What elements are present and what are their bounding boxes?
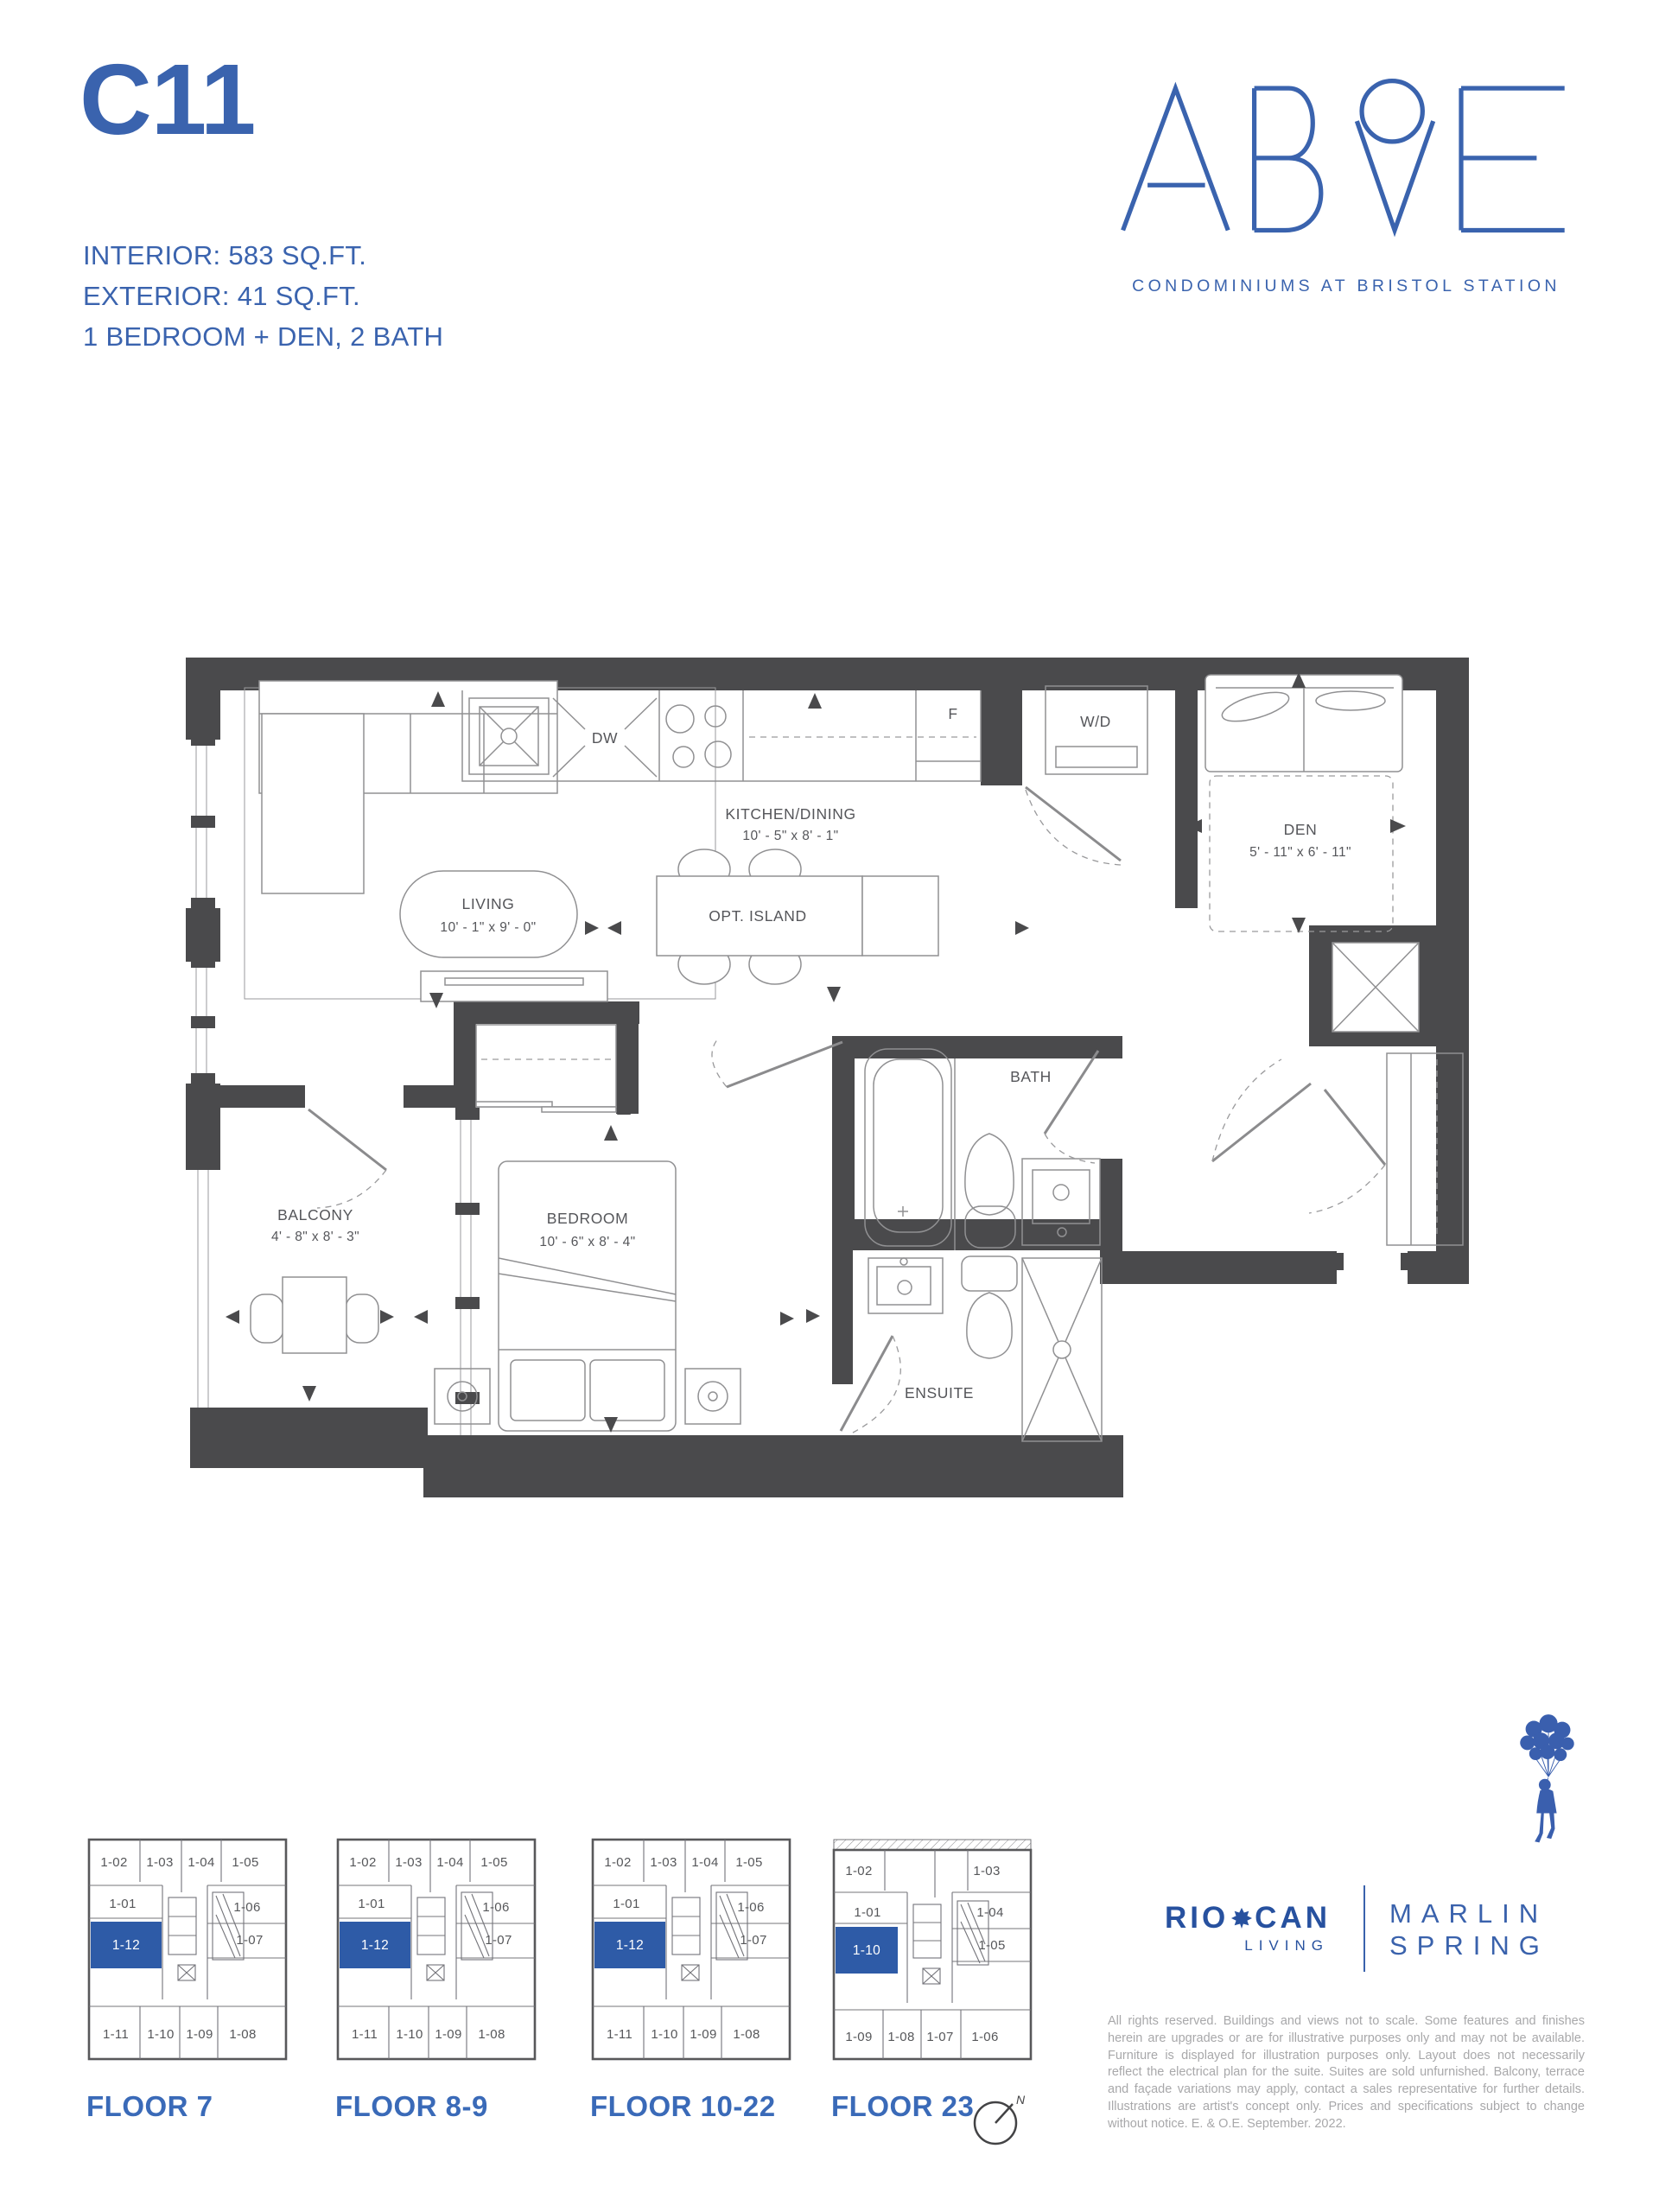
den-dims: 5' - 11" x 6' - 11" [1249, 845, 1351, 860]
svg-text:1-11: 1-11 [352, 2027, 378, 2042]
keyplan-floor-10-22: 1-12 1-02 1-03 1-04 1-05 1-01 1-06 1-07 … [590, 1837, 798, 2123]
svg-text:1-01: 1-01 [854, 1905, 880, 1920]
keyplan-floor-23: 1-10 1-02 1-03 1-01 1-04 1-05 1-09 1-08 … [831, 1837, 1039, 2123]
balloons [1520, 1714, 1573, 1761]
above-logo [1116, 74, 1576, 238]
svg-text:1-03: 1-03 [973, 1864, 1000, 1878]
svg-text:1-08: 1-08 [229, 2027, 256, 2042]
svg-text:1-04: 1-04 [188, 1855, 214, 1870]
marlin-spring-logo: MARLIN SPRING [1389, 1897, 1549, 1961]
svg-text:1-03: 1-03 [650, 1855, 677, 1870]
developer-logos: RIO CAN LIVING MARLIN SPRING [1158, 1882, 1590, 1977]
svg-text:1-09: 1-09 [690, 2027, 716, 2042]
highlight-unit-label: 1-10 [853, 1943, 880, 1958]
logo-divider [1363, 1885, 1365, 1972]
svg-text:1-07: 1-07 [740, 1933, 766, 1948]
spec-block: INTERIOR: 583 SQ.FT. EXTERIOR: 41 SQ.FT.… [83, 235, 443, 357]
svg-text:1-08: 1-08 [478, 2027, 505, 2042]
legal-disclaimer: All rights reserved. Buildings and views… [1108, 2013, 1585, 2133]
above-logo-o-circle [1362, 81, 1422, 142]
svg-text:1-02: 1-02 [604, 1855, 631, 1870]
svg-text:1-01: 1-01 [613, 1897, 639, 1911]
svg-text:1-07: 1-07 [485, 1933, 512, 1948]
foyer-fixtures [1212, 1053, 1463, 1245]
svg-text:1-02: 1-02 [845, 1864, 872, 1878]
kitchen-dims: 10' - 5" x 8' - 1" [742, 829, 838, 843]
svg-text:1-09: 1-09 [435, 2027, 461, 2042]
keyplan-floor-7: 1-12 1-02 1-03 1-04 1-05 1-01 1-06 1-07 … [86, 1837, 294, 2123]
unit-code: C11 [79, 41, 255, 157]
svg-text:1-05: 1-05 [735, 1855, 762, 1870]
spec-interior: INTERIOR: 583 SQ.FT. [83, 235, 443, 276]
spec-exterior: EXTERIOR: 41 SQ.FT. [83, 276, 443, 316]
north-arrow-icon: N [966, 2087, 1035, 2156]
svg-text:1-10: 1-10 [396, 2027, 423, 2042]
svg-text:1-06: 1-06 [971, 2030, 998, 2044]
maple-leaf-icon [1231, 1908, 1252, 1929]
riocan-text-left: RIO [1165, 1901, 1229, 1935]
bedroom-dims: 10' - 6" x 8' - 4" [539, 1235, 635, 1249]
living-label: LIVING [462, 895, 515, 912]
balcony-label: BALCONY [277, 1206, 353, 1224]
svg-text:1-02: 1-02 [349, 1855, 376, 1870]
svg-text:1-05: 1-05 [232, 1855, 258, 1870]
svg-text:1-02: 1-02 [100, 1855, 127, 1870]
keyplan-floor-7-svg: 1-12 1-02 1-03 1-04 1-05 1-01 1-06 1-07 … [86, 1837, 289, 2063]
keyplan-floor-23-svg: 1-10 1-02 1-03 1-01 1-04 1-05 1-09 1-08 … [831, 1837, 1034, 2063]
riocan-logo: RIO CAN LIVING [1165, 1901, 1331, 1955]
svg-text:1-04: 1-04 [436, 1855, 463, 1870]
balloon-girl-logo-icon [1514, 1713, 1581, 1868]
highlight-unit-label: 1-12 [616, 1938, 644, 1953]
fridge-label: F [948, 705, 957, 722]
svg-text:1-03: 1-03 [146, 1855, 173, 1870]
ensuite-label: ENSUITE [905, 1384, 974, 1402]
marlin-line1: MARLIN [1389, 1897, 1549, 1929]
riocan-text-right: CAN [1255, 1901, 1331, 1935]
svg-text:1-10: 1-10 [651, 2027, 677, 2042]
wd-label: W/D [1080, 713, 1111, 730]
island-label: OPT. ISLAND [709, 907, 807, 925]
shaft [1332, 943, 1419, 1032]
keyplan-floor-8-9: 1-12 1-02 1-03 1-04 1-05 1-01 1-06 1-07 … [335, 1837, 543, 2123]
balcony-dims: 4' - 8" x 8' - 3" [271, 1230, 359, 1244]
svg-text:1-04: 1-04 [976, 1905, 1003, 1920]
above-tagline: CONDOMINIUMS AT BRISTOL STATION [1116, 276, 1576, 296]
floorplan-svg: LIVING 10' - 1" x 9' - 0" DW F KITCHEN/D… [186, 653, 1503, 1504]
svg-text:1-01: 1-01 [358, 1897, 385, 1911]
svg-text:1-08: 1-08 [733, 2027, 760, 2042]
highlight-unit-label: 1-12 [361, 1938, 389, 1953]
kitchen-label: KITCHEN/DINING [725, 805, 855, 823]
svg-text:1-06: 1-06 [233, 1900, 260, 1915]
svg-text:1-11: 1-11 [103, 2027, 129, 2042]
above-logo-letters [1123, 81, 1565, 231]
svg-text:1-06: 1-06 [482, 1900, 509, 1915]
svg-text:1-11: 1-11 [607, 2027, 632, 2042]
den-label: DEN [1284, 821, 1318, 838]
svg-text:1-09: 1-09 [186, 2027, 213, 2042]
riocan-living-text: LIVING [1165, 1937, 1329, 1955]
roof-hatch [834, 1840, 1031, 1850]
svg-text:1-06: 1-06 [737, 1900, 764, 1915]
north-label: N [1016, 2093, 1026, 2107]
spec-layout: 1 BEDROOM + DEN, 2 BATH [83, 316, 443, 357]
svg-text:1-04: 1-04 [691, 1855, 718, 1870]
dw-label: DW [592, 729, 618, 747]
svg-text:1-05: 1-05 [480, 1855, 507, 1870]
living-dims: 10' - 1" x 9' - 0" [440, 920, 536, 935]
marlin-line2: SPRING [1389, 1929, 1549, 1961]
floor-label: FLOOR 8-9 [335, 2090, 543, 2123]
svg-text:1-01: 1-01 [109, 1897, 136, 1911]
floor-label: FLOOR 10-22 [590, 2090, 798, 2123]
floorplan-sheet: C11 INTERIOR: 583 SQ.FT. EXTERIOR: 41 SQ… [0, 0, 1659, 2212]
highlight-unit-label: 1-12 [112, 1938, 140, 1953]
svg-text:1-03: 1-03 [395, 1855, 422, 1870]
bath-label: BATH [1010, 1068, 1052, 1085]
keyplan-floor-8-9-svg: 1-12 1-02 1-03 1-04 1-05 1-01 1-06 1-07 … [335, 1837, 538, 2063]
svg-text:1-08: 1-08 [887, 2030, 914, 2044]
svg-text:1-09: 1-09 [845, 2030, 872, 2044]
den-fixtures [1205, 675, 1402, 931]
svg-text:1-05: 1-05 [978, 1938, 1005, 1953]
girl-silhouette [1535, 1777, 1556, 1842]
svg-text:1-10: 1-10 [147, 2027, 174, 2042]
ensuite-fixtures [841, 1256, 1102, 1441]
bedroom-label: BEDROOM [547, 1210, 629, 1227]
floor-label: FLOOR 7 [86, 2090, 294, 2123]
svg-text:1-07: 1-07 [926, 2030, 953, 2044]
keyplan-floor-10-22-svg: 1-12 1-02 1-03 1-04 1-05 1-01 1-06 1-07 … [590, 1837, 793, 2063]
svg-text:1-07: 1-07 [236, 1933, 263, 1948]
